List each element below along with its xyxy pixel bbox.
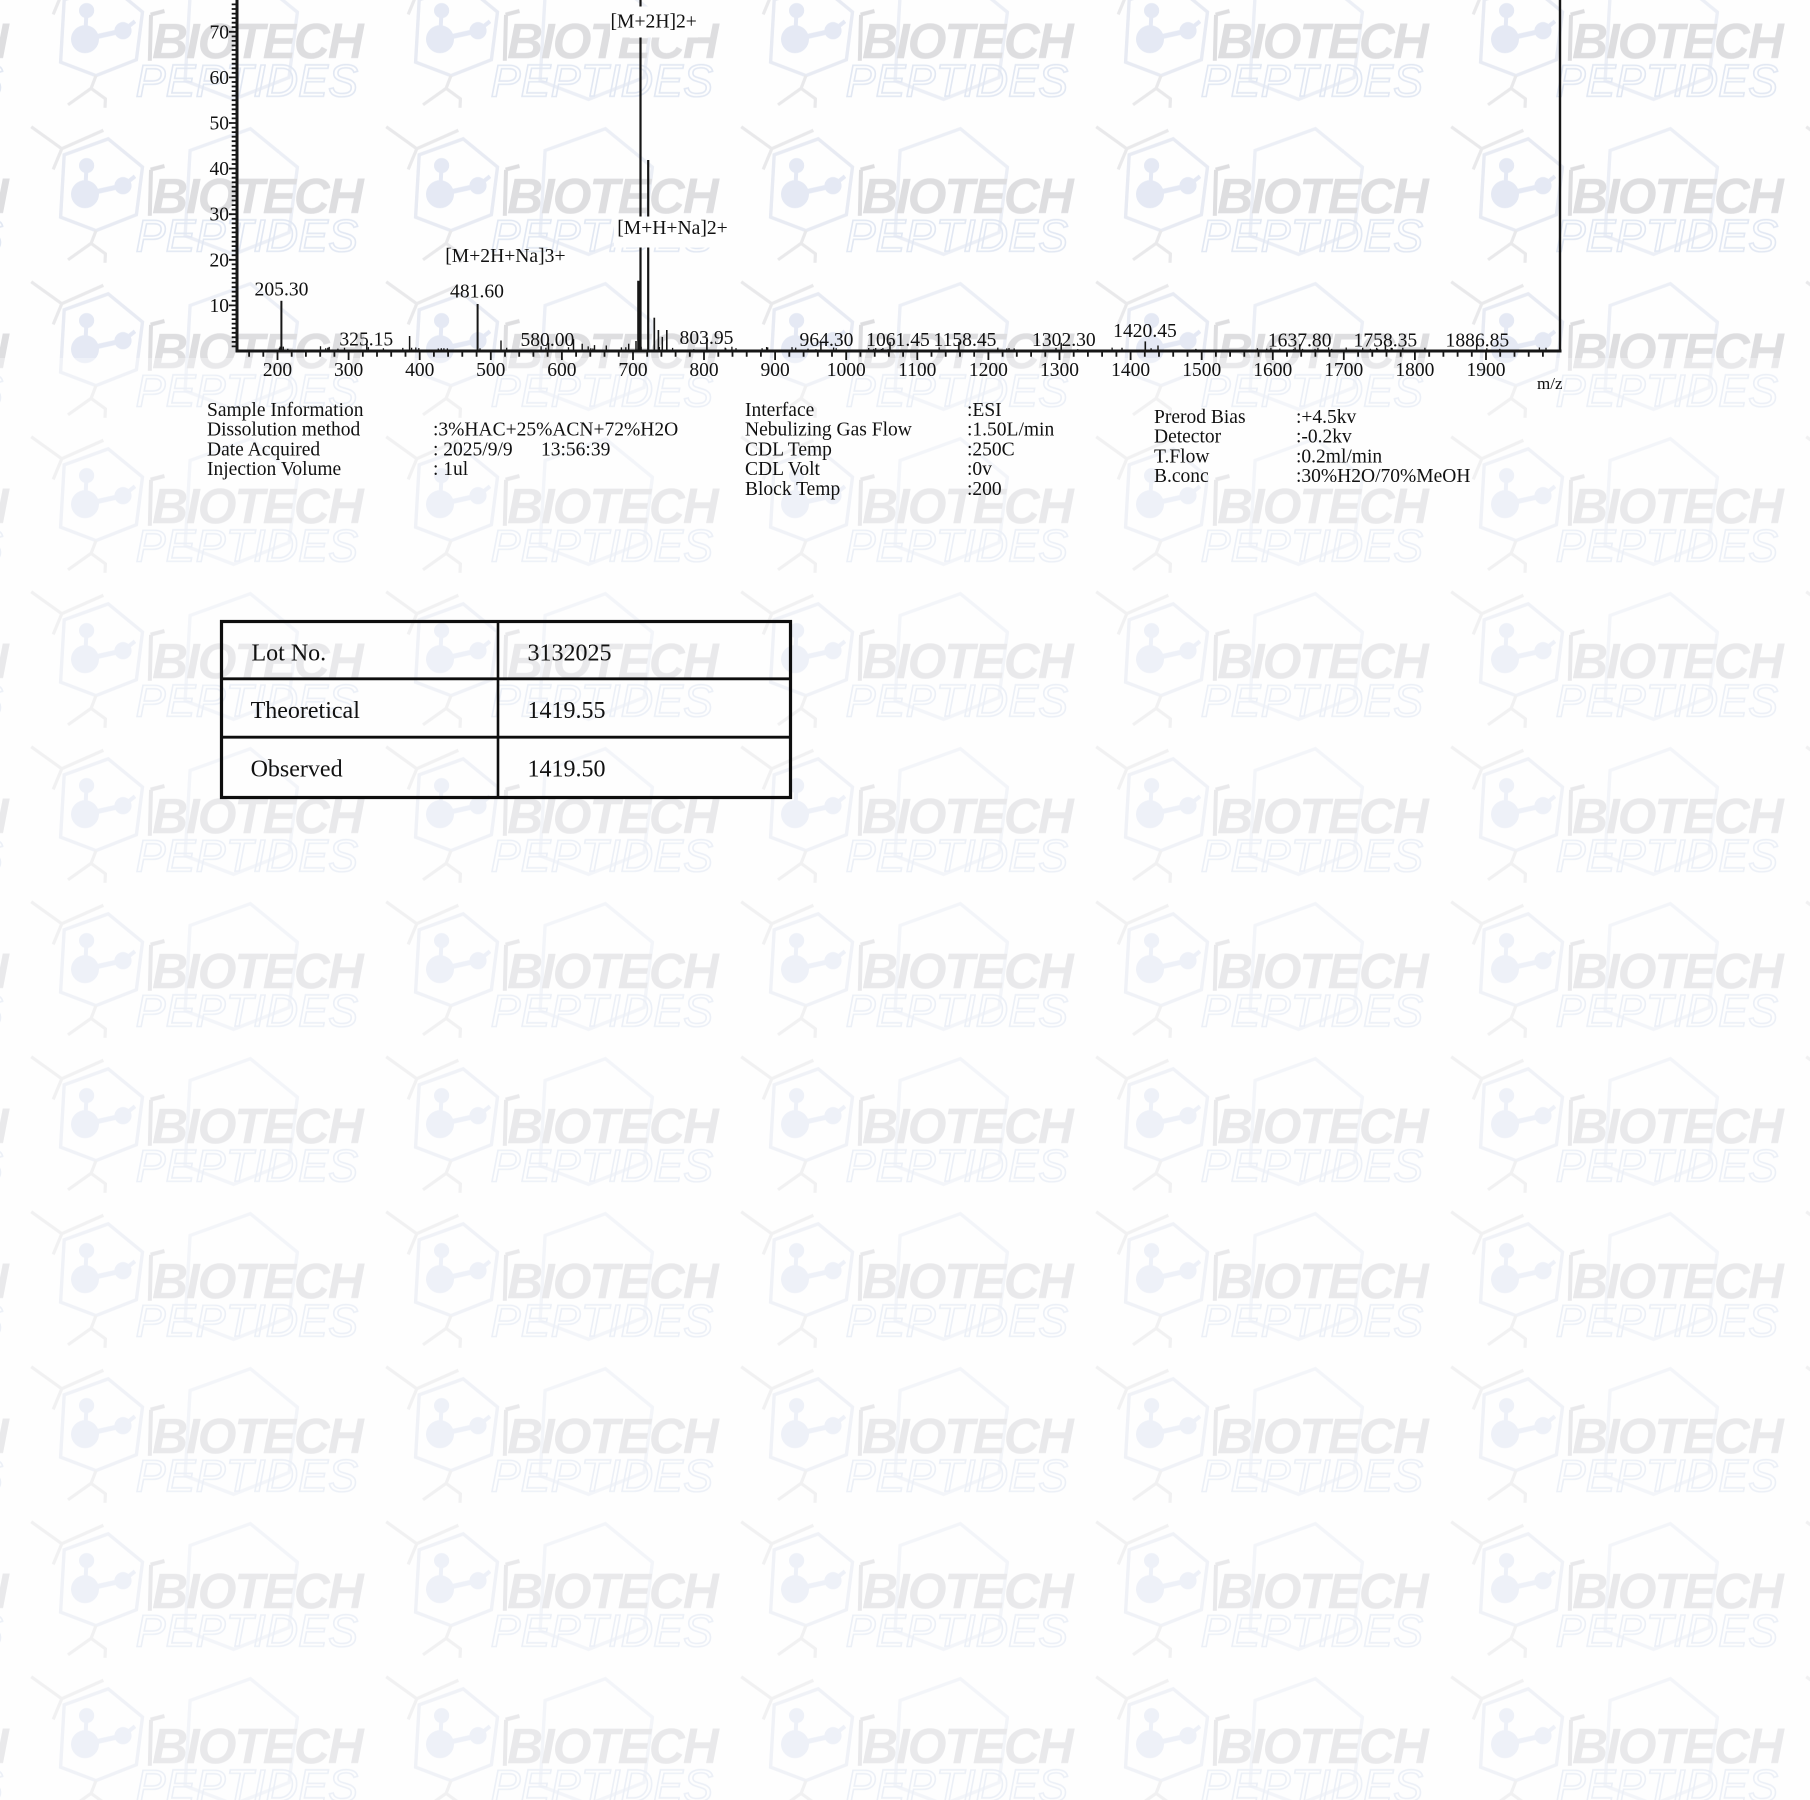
svg-text:CDL Temp: CDL Temp (745, 439, 832, 460)
svg-text::1.50L/min: :1.50L/min (967, 420, 1054, 441)
svg-text:481.60: 481.60 (450, 282, 504, 303)
svg-text:1419.50: 1419.50 (528, 757, 606, 783)
svg-text:1900: 1900 (1467, 360, 1506, 381)
svg-text:803.95: 803.95 (680, 328, 734, 349)
svg-text:Nebulizing Gas Flow: Nebulizing Gas Flow (745, 420, 912, 441)
svg-text:70: 70 (210, 22, 230, 43)
svg-text:Interface: Interface (745, 400, 814, 421)
svg-text:205.30: 205.30 (255, 280, 309, 301)
svg-text:1158.45: 1158.45 (934, 330, 997, 351)
svg-text:Date Acquired: Date Acquired (207, 439, 320, 460)
svg-text::3%HAC+25%ACN+72%H2O: :3%HAC+25%ACN+72%H2O (433, 420, 678, 441)
svg-text:[M+2H]2+: [M+2H]2+ (611, 12, 697, 33)
svg-text::-0.2kv: :-0.2kv (1296, 427, 1352, 448)
svg-text::0.2ml/min: :0.2ml/min (1296, 446, 1382, 467)
svg-text:: 2025/9/9: : 2025/9/9 (433, 439, 513, 460)
svg-text:Dissolution method: Dissolution method (207, 420, 361, 441)
svg-text:: 1ul: : 1ul (433, 459, 469, 480)
svg-text::+4.5kv: :+4.5kv (1296, 407, 1357, 428)
svg-text:CDL Volt: CDL Volt (745, 459, 821, 480)
svg-text:1300: 1300 (1040, 360, 1079, 381)
svg-text:1600: 1600 (1253, 360, 1292, 381)
svg-text:700: 700 (618, 360, 647, 381)
svg-text:500: 500 (476, 360, 505, 381)
svg-text:T.Flow: T.Flow (1154, 446, 1209, 467)
svg-text:964.30: 964.30 (800, 330, 854, 351)
svg-text:1000: 1000 (827, 360, 866, 381)
svg-text:Lot No.: Lot No. (252, 641, 327, 667)
svg-text:1200: 1200 (969, 360, 1008, 381)
svg-text:1419.55: 1419.55 (528, 698, 606, 724)
svg-text:40: 40 (210, 159, 230, 180)
svg-text:1420.45: 1420.45 (1113, 321, 1177, 342)
svg-text:1886.85: 1886.85 (1446, 331, 1510, 352)
svg-text:1637.80: 1637.80 (1268, 331, 1332, 352)
svg-text:3132025: 3132025 (528, 641, 612, 667)
svg-text:600: 600 (547, 360, 576, 381)
svg-text:Detector: Detector (1154, 427, 1222, 448)
svg-text:1061.45: 1061.45 (866, 330, 930, 351)
svg-text:60: 60 (210, 68, 230, 89)
svg-text:1302.30: 1302.30 (1032, 330, 1096, 351)
svg-text:[M+H+Na]2+: [M+H+Na]2+ (617, 218, 727, 239)
svg-text:Theoretical: Theoretical (251, 698, 361, 724)
svg-text:30: 30 (210, 205, 230, 226)
svg-text:Observed: Observed (251, 757, 343, 783)
svg-text:580.00: 580.00 (520, 330, 574, 351)
svg-text::200: :200 (967, 479, 1002, 500)
svg-text:300: 300 (334, 360, 363, 381)
svg-text:Prerod Bias: Prerod Bias (1154, 407, 1246, 428)
svg-text:10: 10 (210, 296, 230, 317)
svg-text:1400: 1400 (1111, 360, 1150, 381)
svg-text::250C: :250C (967, 439, 1015, 460)
svg-text:1500: 1500 (1182, 360, 1221, 381)
svg-text:1100: 1100 (898, 360, 936, 381)
svg-text::30%H2O/70%MeOH: :30%H2O/70%MeOH (1296, 466, 1470, 487)
svg-text:m/z: m/z (1537, 374, 1563, 393)
svg-text::ESI: :ESI (967, 400, 1002, 421)
svg-text:900: 900 (760, 360, 789, 381)
svg-text:[M+2H+Na]3+: [M+2H+Na]3+ (445, 246, 565, 267)
svg-text:1800: 1800 (1395, 360, 1434, 381)
svg-text:Injection Volume: Injection Volume (207, 459, 341, 480)
svg-text:1700: 1700 (1324, 360, 1363, 381)
svg-text:1758.35: 1758.35 (1354, 331, 1418, 352)
svg-text::0v: :0v (967, 459, 992, 480)
svg-text:B.conc: B.conc (1154, 466, 1209, 487)
svg-text:Sample Information: Sample Information (207, 400, 364, 421)
svg-text:13:56:39: 13:56:39 (541, 439, 610, 460)
svg-text:50: 50 (210, 114, 230, 135)
svg-text:20: 20 (210, 250, 230, 271)
svg-text:400: 400 (405, 360, 434, 381)
svg-text:200: 200 (263, 360, 292, 381)
svg-text:800: 800 (689, 360, 718, 381)
svg-text:325.15: 325.15 (339, 330, 393, 351)
svg-text:Block Temp: Block Temp (745, 479, 840, 500)
